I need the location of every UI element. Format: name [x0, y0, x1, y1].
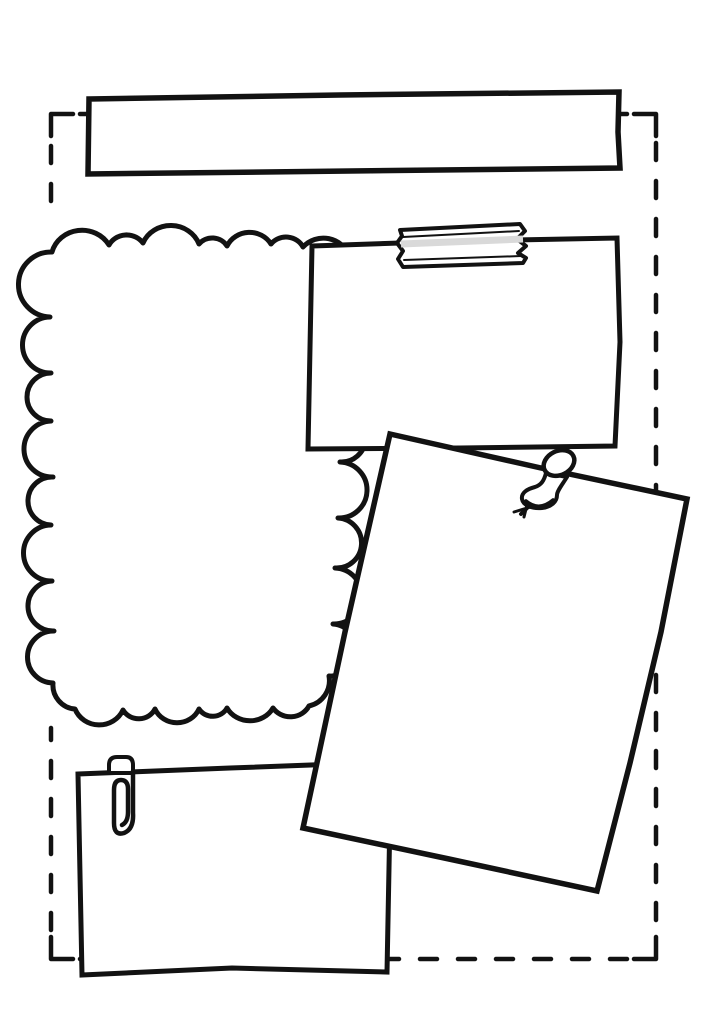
taped-note-paper	[308, 238, 620, 449]
washi-tape-icon	[397, 224, 526, 267]
worksheet-page	[0, 0, 709, 1013]
paperclip-hook	[109, 757, 133, 773]
taped-note	[308, 224, 620, 449]
tape-paper-edge-tint	[401, 239, 523, 244]
worksheet-canvas	[0, 0, 709, 1013]
ink-layer	[18, 92, 687, 975]
title-banner	[88, 92, 620, 174]
title-banner-box	[88, 92, 620, 174]
